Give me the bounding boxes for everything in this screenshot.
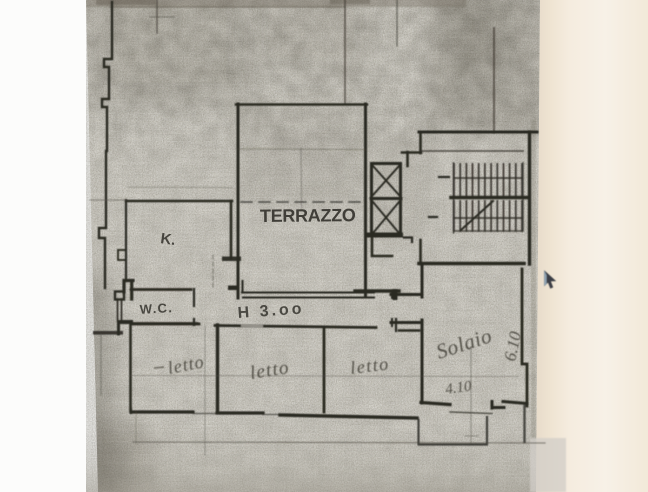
svg-text:K.: K. (159, 230, 176, 249)
svg-text:TERRAZZO: TERRAZZO (260, 205, 356, 226)
svg-text:W.C.: W.C. (139, 300, 173, 317)
